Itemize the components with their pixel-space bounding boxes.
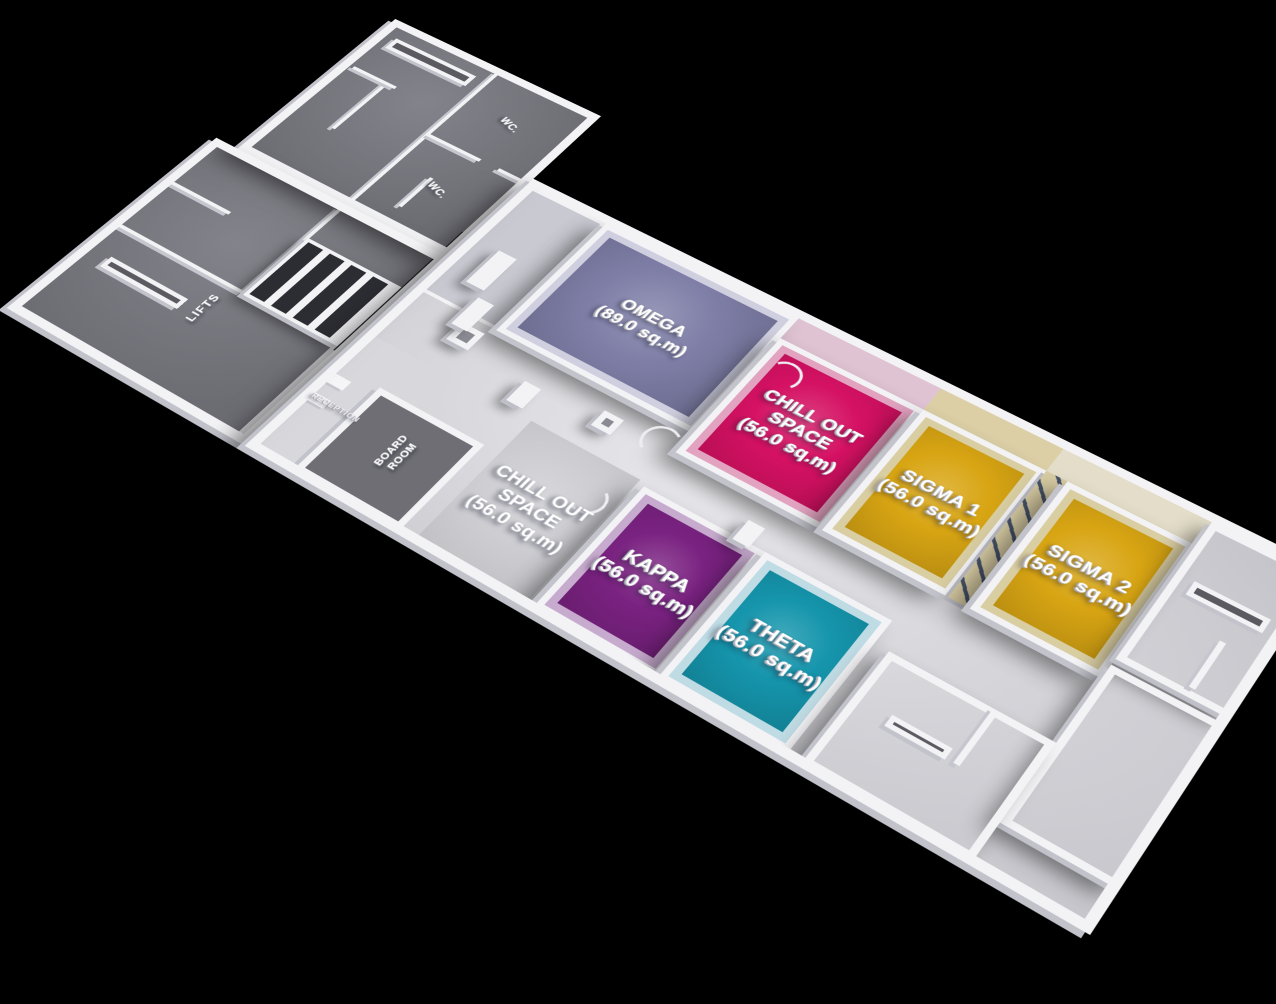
floorplan-3d-scene: OMEGA (89.0 sq.m) CHILL OUT SPACE (56.0 … — [7, 9, 1276, 935]
floorplan-viewport: OMEGA (89.0 sq.m) CHILL OUT SPACE (56.0 … — [0, 0, 1276, 1004]
